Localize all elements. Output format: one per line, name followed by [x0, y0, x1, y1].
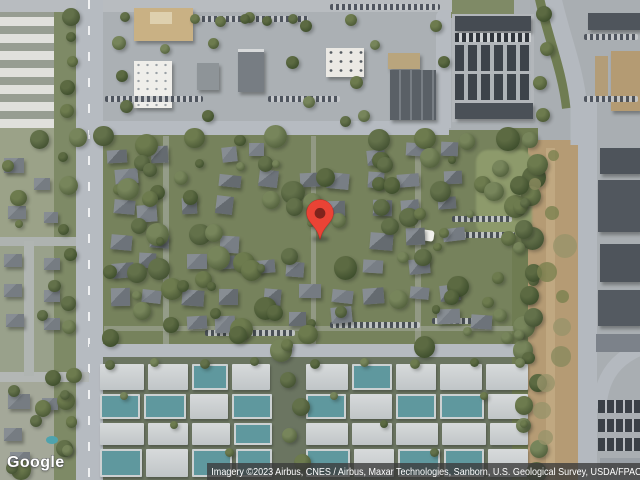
map-terrain-feature	[545, 206, 559, 220]
map-terrain-feature	[208, 38, 219, 49]
map-terrain-feature	[0, 0, 54, 128]
map-terrain-feature	[334, 256, 357, 279]
map-terrain-feature	[30, 415, 42, 427]
satellite-map-viewport[interactable]: Google Imagery ©2023 Airbus, CNES / Airb…	[0, 0, 640, 480]
map-terrain-feature	[522, 132, 538, 148]
map-terrain-feature	[132, 291, 141, 300]
map-terrain-feature	[440, 364, 482, 390]
map-terrain-feature	[177, 280, 189, 292]
map-terrain-feature	[533, 76, 547, 90]
map-terrain-feature	[93, 126, 113, 146]
map-terrain-feature	[221, 147, 238, 163]
map-terrain-feature	[598, 290, 640, 326]
map-terrain-feature	[44, 212, 58, 223]
map-terrain-feature	[515, 396, 534, 415]
map-terrain-feature	[363, 287, 385, 305]
map-terrain-feature	[163, 317, 179, 333]
map-terrain-feature	[286, 198, 303, 215]
google-logo[interactable]: Google	[7, 454, 65, 472]
map-terrain-feature	[527, 154, 548, 175]
map-terrain-feature	[520, 420, 528, 428]
map-terrain-feature	[60, 390, 70, 400]
map-terrain-feature	[588, 13, 640, 30]
map-terrain-feature	[484, 182, 503, 201]
map-terrain-feature	[4, 254, 22, 267]
map-terrain-feature	[44, 318, 60, 330]
map-terrain-feature	[390, 70, 436, 120]
map-terrain-feature	[197, 63, 219, 90]
map-terrain-feature	[215, 195, 234, 215]
map-terrain-feature	[540, 42, 554, 56]
map-terrain-feature	[360, 358, 369, 367]
map-terrain-feature	[8, 206, 26, 219]
map-terrain-feature	[146, 449, 188, 477]
map-terrain-feature	[370, 40, 380, 50]
map-terrain-feature	[463, 327, 472, 336]
map-pin-icon[interactable]	[306, 199, 334, 241]
map-terrain-feature	[44, 258, 60, 270]
map-terrain-feature	[6, 314, 24, 327]
map-terrain-feature	[30, 130, 49, 149]
map-terrain-feature	[120, 12, 130, 22]
map-terrain-feature	[595, 56, 608, 96]
map-terrain-feature	[215, 16, 226, 27]
map-terrain-feature	[384, 177, 400, 193]
map-terrain-feature	[397, 173, 419, 187]
map-terrain-feature	[292, 398, 310, 416]
map-terrain-feature	[66, 416, 78, 428]
map-terrain-feature	[300, 20, 312, 32]
map-terrain-feature	[112, 36, 126, 50]
map-terrain-feature	[600, 244, 640, 282]
map-terrain-feature	[442, 423, 486, 445]
map-terrain-feature	[160, 44, 170, 54]
map-terrain-feature	[89, 344, 529, 357]
map-terrain-feature	[148, 258, 170, 280]
map-terrain-feature	[388, 53, 420, 69]
map-terrain-feature	[352, 364, 392, 390]
map-terrain-feature	[148, 423, 188, 445]
map-terrain-feature	[182, 289, 206, 307]
map-terrain-feature	[236, 162, 245, 171]
map-terrain-feature	[150, 12, 172, 24]
attribution-text: Imagery ©2023 Airbus, CNES / Airbus, Max…	[207, 466, 640, 478]
map-terrain-feature	[405, 228, 424, 246]
map-terrain-feature	[414, 128, 436, 150]
map-terrain-feature	[62, 320, 76, 334]
map-terrain-feature	[232, 394, 272, 419]
map-terrain-feature	[190, 14, 200, 24]
map-terrain-feature	[326, 48, 364, 77]
map-terrain-feature	[410, 359, 420, 369]
map-terrain-feature	[389, 290, 408, 309]
map-terrain-feature	[430, 181, 451, 202]
map-terrain-feature	[414, 249, 431, 266]
map-terrain-feature	[225, 448, 234, 457]
map-terrain-feature	[111, 288, 131, 306]
map-terrain-feature	[88, 0, 90, 480]
map-terrain-feature	[100, 449, 142, 477]
map-terrain-feature	[493, 309, 506, 322]
map-terrain-feature	[515, 358, 525, 368]
map-terrain-feature	[219, 289, 239, 305]
map-terrain-feature	[480, 392, 488, 400]
map-terrain-feature	[430, 20, 442, 32]
map-terrain-feature	[598, 419, 640, 432]
map-terrain-feature	[598, 438, 640, 451]
map-terrain-feature	[103, 265, 117, 279]
map-terrain-feature	[510, 176, 529, 195]
map-terrain-feature	[396, 423, 438, 445]
map-terrain-feature	[210, 308, 221, 319]
map-terrain-feature	[452, 216, 512, 222]
map-terrain-feature	[114, 199, 137, 215]
map-terrain-feature	[190, 394, 228, 419]
map-terrain-feature	[598, 400, 640, 413]
map-terrain-feature	[331, 289, 353, 304]
map-terrain-feature	[187, 315, 208, 329]
map-terrain-feature	[444, 170, 463, 184]
map-terrain-feature	[282, 428, 297, 443]
map-terrain-feature	[143, 163, 157, 177]
map-terrain-feature	[420, 148, 439, 167]
map-terrain-feature	[537, 262, 557, 282]
map-terrain-feature	[470, 314, 492, 330]
map-terrain-feature	[310, 359, 320, 369]
map-terrain-feature	[192, 423, 230, 445]
map-terrain-feature	[102, 329, 120, 347]
map-terrain-feature	[437, 308, 460, 324]
map-terrain-feature	[58, 152, 68, 162]
map-terrain-feature	[234, 135, 245, 146]
map-terrain-feature	[280, 372, 296, 388]
map-terrain-feature	[433, 243, 442, 252]
map-terrain-feature	[240, 14, 250, 24]
map-terrain-feature	[470, 358, 479, 367]
map-terrain-feature	[397, 252, 409, 264]
map-terrain-feature	[232, 364, 270, 390]
map-terrain-feature	[48, 280, 60, 292]
map-terrain-feature	[455, 45, 531, 71]
map-terrain-feature	[551, 346, 572, 367]
map-terrain-feature	[207, 282, 216, 291]
map-terrain-feature	[174, 171, 188, 185]
map-terrain-feature	[548, 150, 559, 161]
map-terrain-feature	[202, 110, 214, 122]
map-terrain-feature	[358, 110, 370, 122]
map-terrain-feature	[10, 190, 26, 206]
map-terrain-feature	[281, 248, 298, 265]
map-terrain-feature	[396, 394, 436, 419]
map-terrain-feature	[553, 318, 571, 336]
map-terrain-feature	[306, 394, 346, 419]
map-terrain-feature	[192, 364, 228, 390]
map-terrain-feature	[482, 297, 493, 308]
map-terrain-feature	[170, 421, 178, 429]
map-terrain-feature	[288, 14, 298, 24]
map-terrain-feature	[316, 168, 335, 187]
map-terrain-feature	[184, 128, 204, 148]
map-terrain-feature	[234, 423, 272, 445]
map-terrain-feature	[64, 248, 77, 261]
map-terrain-feature	[116, 70, 128, 82]
map-terrain-feature	[496, 127, 520, 151]
map-terrain-feature	[258, 169, 279, 188]
map-terrain-feature	[410, 286, 430, 300]
map-terrain-feature	[133, 302, 151, 320]
map-terrain-feature	[492, 160, 509, 177]
map-terrain-feature	[448, 156, 456, 164]
map-terrain-feature	[584, 34, 638, 40]
map-terrain-feature	[514, 330, 524, 340]
map-terrain-feature	[459, 133, 475, 149]
map-terrain-feature	[611, 51, 640, 111]
map-terrain-feature	[37, 310, 48, 321]
map-terrain-feature	[24, 241, 34, 376]
map-attribution-bar: Imagery ©2023 Airbus, CNES / Airbus, Max…	[207, 463, 640, 480]
map-terrain-feature	[120, 100, 133, 113]
map-terrain-feature	[258, 156, 274, 172]
map-terrain-feature	[598, 180, 640, 232]
map-terrain-feature	[440, 394, 484, 419]
map-terrain-feature	[380, 420, 388, 428]
map-terrain-feature	[330, 392, 338, 400]
map-terrain-feature	[373, 199, 391, 217]
map-terrain-feature	[439, 228, 448, 237]
map-terrain-feature	[207, 246, 231, 270]
map-terrain-feature	[117, 178, 139, 200]
map-terrain-feature	[150, 358, 159, 367]
map-terrain-feature	[298, 325, 318, 345]
map-terrain-feature	[455, 103, 533, 119]
map-terrain-feature	[303, 96, 315, 108]
map-terrain-feature	[441, 142, 459, 156]
map-terrain-feature	[455, 74, 531, 100]
map-terrain-feature	[486, 364, 528, 390]
map-terrain-feature	[596, 334, 640, 352]
pin-hole	[315, 208, 326, 219]
map-terrain-feature	[248, 143, 264, 156]
map-terrain-feature	[105, 96, 203, 102]
map-terrain-feature	[455, 33, 531, 42]
map-terrain-feature	[350, 76, 363, 89]
map-terrain-feature	[111, 234, 134, 250]
map-terrain-feature	[200, 359, 210, 369]
map-terrain-feature	[35, 400, 52, 417]
map-terrain-feature	[257, 264, 265, 272]
pin-body	[307, 200, 334, 240]
map-terrain-feature	[262, 191, 280, 209]
map-terrain-feature	[186, 254, 206, 269]
map-terrain-feature	[262, 16, 272, 26]
map-terrain-feature	[107, 150, 128, 164]
map-terrain-feature	[492, 272, 503, 283]
map-terrain-feature	[238, 49, 264, 92]
map-terrain-feature	[455, 16, 531, 31]
map-terrain-feature	[368, 129, 390, 151]
map-terrain-feature	[584, 96, 638, 102]
map-terrain-feature	[183, 190, 197, 204]
map-terrain-feature	[100, 423, 144, 445]
map-terrain-feature	[340, 116, 351, 127]
map-terrain-feature	[69, 128, 88, 147]
map-terrain-feature	[127, 263, 147, 283]
map-terrain-feature	[306, 423, 348, 445]
map-terrain-feature	[229, 326, 247, 344]
map-terrain-feature	[120, 392, 128, 400]
map-terrain-feature	[600, 148, 640, 174]
map-terrain-feature	[536, 108, 550, 122]
map-terrain-feature	[350, 394, 392, 419]
map-terrain-feature	[533, 402, 550, 419]
map-terrain-feature	[414, 336, 436, 358]
map-terrain-feature	[250, 357, 259, 366]
map-terrain-feature	[0, 237, 76, 246]
map-terrain-feature	[34, 178, 50, 190]
map-terrain-feature	[414, 208, 426, 220]
map-terrain-feature	[515, 220, 534, 239]
map-terrain-feature	[438, 56, 450, 68]
map-terrain-feature	[267, 305, 283, 321]
map-terrain-feature	[4, 428, 22, 441]
map-terrain-feature	[362, 260, 382, 274]
map-terrain-feature	[8, 385, 20, 397]
map-terrain-feature	[369, 232, 393, 251]
map-terrain-feature	[286, 56, 299, 69]
map-terrain-feature	[430, 448, 439, 457]
map-terrain-feature	[330, 4, 440, 10]
map-terrain-feature	[60, 80, 75, 95]
map-terrain-feature	[345, 14, 357, 26]
map-terrain-feature	[46, 436, 58, 444]
map-terrain-feature	[536, 6, 552, 22]
map-terrain-feature	[144, 394, 186, 419]
map-terrain-feature	[148, 364, 188, 390]
map-terrain-feature	[105, 360, 115, 370]
map-terrain-feature	[432, 305, 441, 314]
map-terrain-feature	[299, 284, 321, 299]
map-terrain-feature	[66, 368, 81, 383]
map-terrain-feature	[59, 176, 78, 195]
map-terrain-feature	[537, 374, 555, 392]
map-terrain-feature	[4, 284, 22, 297]
map-terrain-feature	[289, 312, 306, 326]
